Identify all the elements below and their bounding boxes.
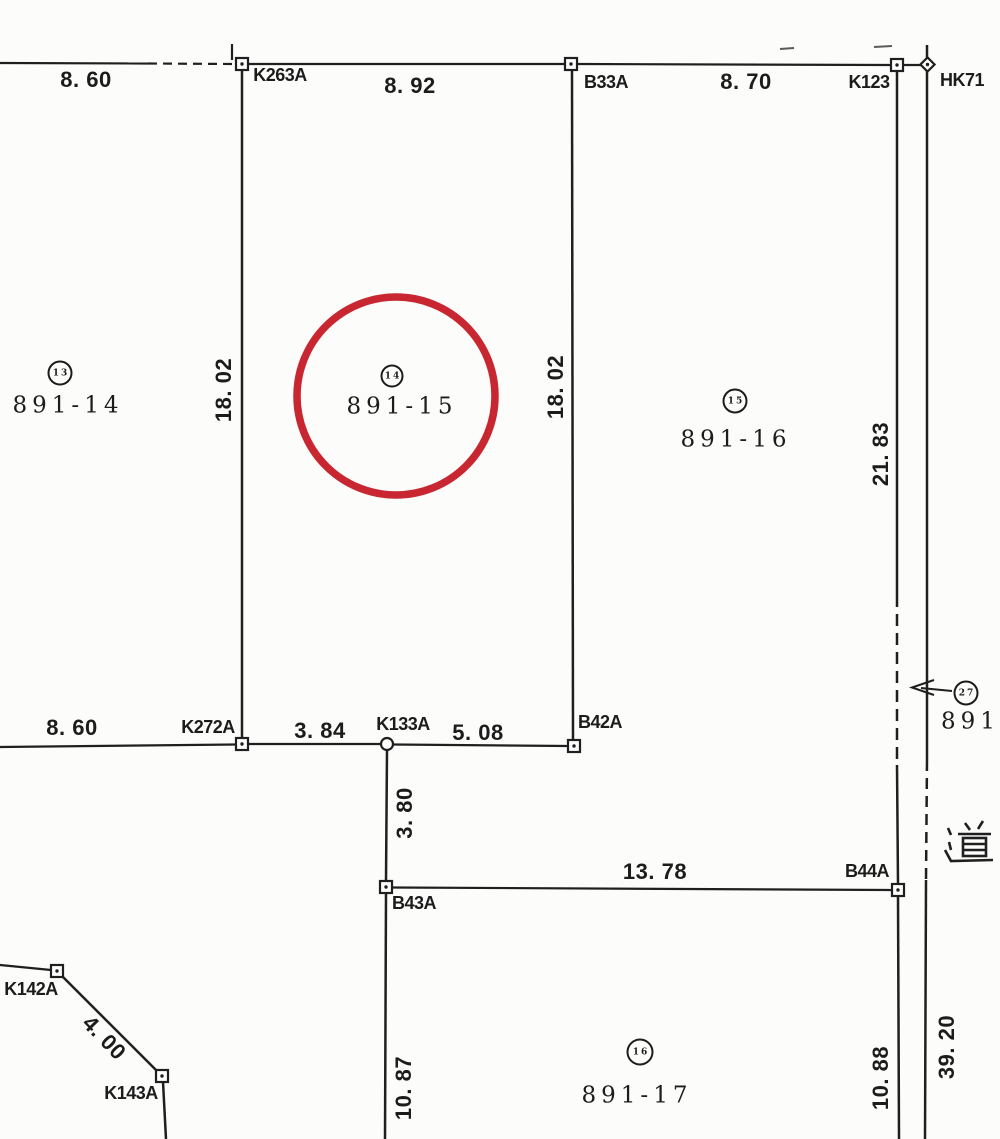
point-label-k142a: K142A bbox=[4, 980, 58, 998]
point-label-hk71: HK71 bbox=[940, 71, 984, 89]
marker-dot-b33a bbox=[569, 62, 572, 65]
point-label-k123: K123 bbox=[848, 73, 889, 91]
map-linework bbox=[0, 0, 1000, 1139]
parcel-point-no-14: 14 bbox=[383, 371, 402, 381]
boundary-bottom-left bbox=[0, 745, 236, 748]
measurement-5-08: 5. 08 bbox=[452, 722, 503, 744]
marker-dot-k263a bbox=[240, 62, 243, 65]
parcel-label-891-15: 891-15 bbox=[347, 396, 458, 419]
marker-dot-b43a bbox=[384, 885, 387, 888]
parcel-label-891-right: 891- bbox=[941, 711, 1000, 734]
road-boundary2-c bbox=[925, 880, 926, 1139]
parcel-point-badge-16: 16 bbox=[627, 1039, 654, 1066]
measurement-left-18-02: 18. 02 bbox=[213, 358, 235, 422]
point-label-b33a: B33A bbox=[584, 73, 628, 91]
measurement-3-84: 3. 84 bbox=[294, 720, 345, 742]
marker-dot-k272a bbox=[240, 742, 243, 745]
stem-k143a-bottom bbox=[163, 1082, 166, 1139]
measurement-right-21-83: 21. 83 bbox=[870, 422, 892, 486]
road-boundary1-d bbox=[898, 896, 899, 1139]
measurement-10-87: 10. 87 bbox=[393, 1056, 415, 1120]
point-label-b43a: B43A bbox=[392, 894, 436, 912]
measurement-bottom-8-60: 8. 60 bbox=[46, 717, 97, 739]
measurement-top-left: 8. 60 bbox=[60, 69, 111, 91]
arrow-line bbox=[921, 688, 952, 691]
parcel-point-no-13: 13 bbox=[51, 368, 70, 378]
point-label-b44a: B44A bbox=[845, 862, 889, 880]
stem-k133a-b43a bbox=[386, 750, 387, 881]
parcel-point-no-15: 15 bbox=[726, 396, 745, 406]
road-boundary1-c bbox=[897, 765, 898, 884]
measurement-top-mid: 8. 92 bbox=[384, 75, 435, 97]
marker-dot-b44a bbox=[896, 888, 899, 891]
point-label-b42a: B42A bbox=[578, 713, 622, 731]
point-label-k272a: K272A bbox=[181, 718, 235, 736]
parcel-point-no-27: 27 bbox=[957, 688, 976, 698]
point-label-k263a: K263A bbox=[253, 66, 307, 84]
road-boundary2-b bbox=[926, 760, 927, 880]
scan-dash-1 bbox=[780, 48, 794, 49]
stem-b43a-bottom bbox=[385, 893, 386, 1139]
marker-dot-k142a bbox=[55, 969, 58, 972]
parcel-point-no-16: 16 bbox=[631, 1047, 650, 1057]
parcel-label-891-14: 891-14 bbox=[13, 395, 124, 418]
boundary-left-k142a bbox=[0, 965, 51, 970]
boundary-top-left-dashed bbox=[148, 64, 236, 65]
parcel-point-badge-14: 14 bbox=[381, 365, 404, 388]
point-label-k143a: K143A bbox=[104, 1084, 158, 1102]
measurement-39-20: 39. 20 bbox=[936, 1015, 958, 1079]
parcel-label-891-16: 891-16 bbox=[681, 429, 792, 452]
measurement-top-right: 8. 70 bbox=[720, 71, 771, 93]
road-kanji-strokes bbox=[945, 821, 993, 861]
parcel-label-891-17: 891-17 bbox=[582, 1085, 693, 1108]
cadastral-map: 8. 60 K263A 8. 92 B33A 8. 70 K123 HK71 1… bbox=[0, 0, 1000, 1139]
marker-dot-k143a bbox=[160, 1074, 163, 1077]
measurement-3-80: 3. 80 bbox=[394, 787, 416, 838]
boundary-top-left bbox=[0, 63, 148, 64]
marker-dot-k123 bbox=[895, 63, 898, 66]
boundary-right-891-15 bbox=[572, 70, 573, 740]
point-label-k133a: K133A bbox=[376, 715, 430, 733]
measurement-mid-18-02: 18. 02 bbox=[545, 355, 567, 419]
parcel-point-badge-15: 15 bbox=[723, 389, 748, 414]
measurement-10-88: 10. 88 bbox=[870, 1046, 892, 1110]
measurement-13-78: 13. 78 bbox=[623, 861, 687, 883]
marker-dot-hk71 bbox=[926, 63, 929, 66]
marker-dot-b42a bbox=[572, 744, 575, 747]
parcel-point-badge-27: 27 bbox=[954, 681, 979, 706]
marker-k133a bbox=[381, 738, 393, 750]
boundary-b43a-b44a bbox=[392, 888, 892, 891]
scan-dash-2 bbox=[874, 46, 892, 47]
boundary-top-right bbox=[577, 64, 891, 65]
parcel-point-badge-13: 13 bbox=[48, 361, 73, 386]
